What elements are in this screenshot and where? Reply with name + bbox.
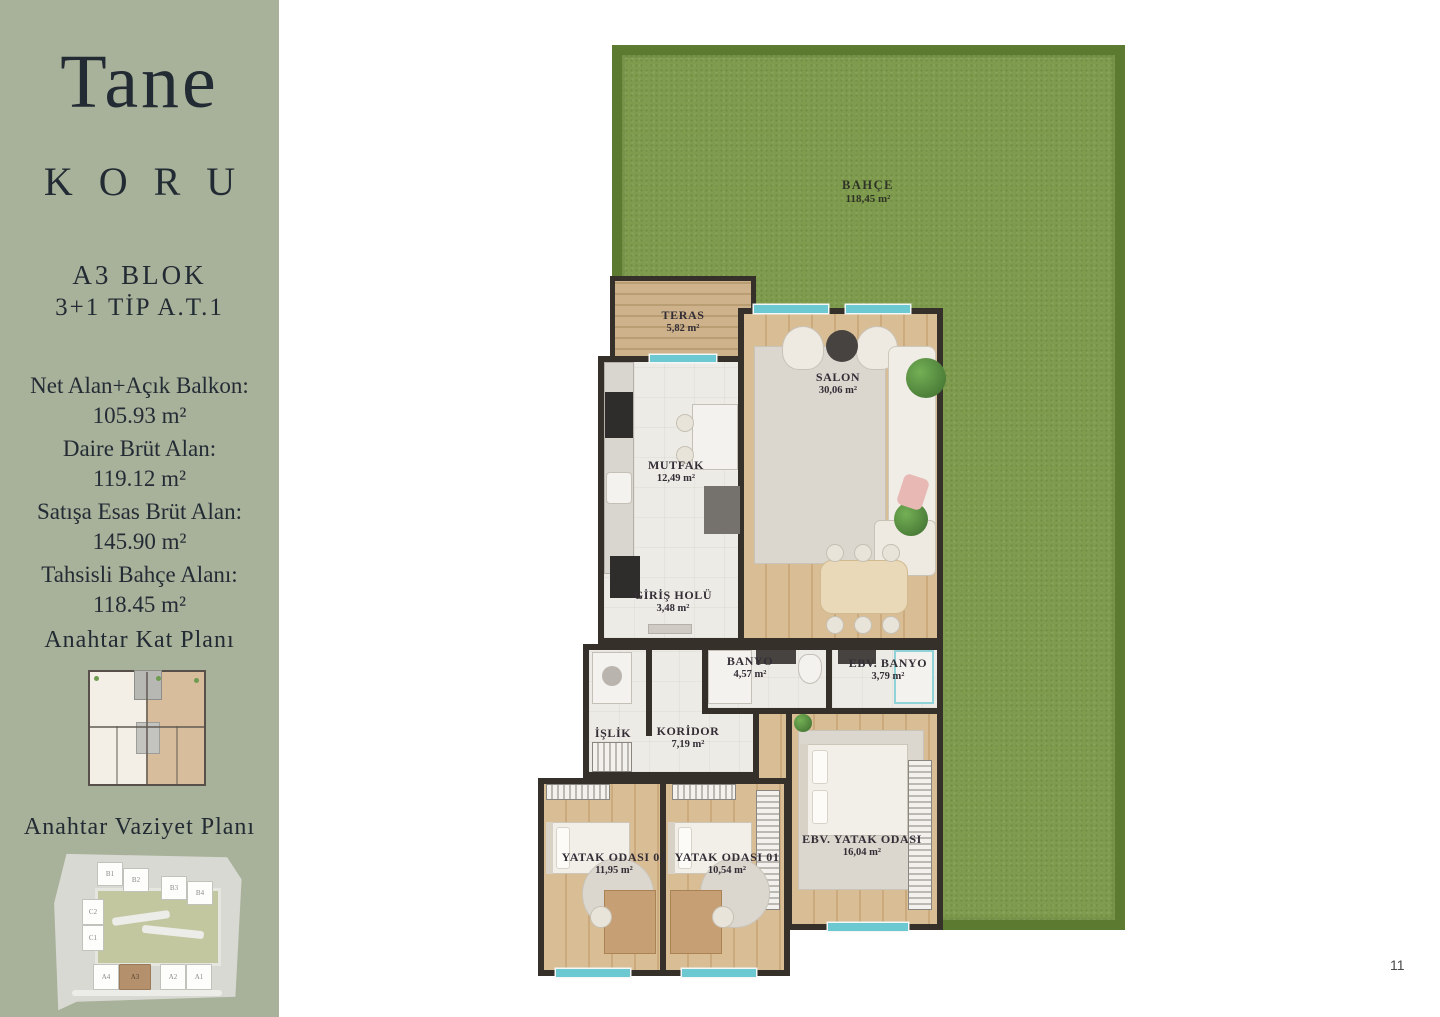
room-label-mutfak: MUTFAK 12,49 m² <box>648 458 704 484</box>
room-label-koridor: KORİDOR 7,19 m² <box>657 724 720 750</box>
dining-chair <box>826 616 844 634</box>
site-block: A1 <box>186 964 212 990</box>
window <box>682 969 756 977</box>
room-name: EBV. BANYO <box>849 656 927 671</box>
room-name: BANYO <box>727 654 773 669</box>
area-info-value: 145.90 m² <box>0 527 279 557</box>
site-block-label: A2 <box>169 973 178 981</box>
dining-chair <box>882 544 900 562</box>
site-block: B1 <box>97 862 123 886</box>
coffee-table <box>826 330 858 362</box>
area-info-value: 118.45 m² <box>0 590 279 620</box>
site-plan-thumbnail: B1 B2 B3 B4 C2 C1 A4 A3 A2 A1 <box>50 842 256 1012</box>
site-block-label: B2 <box>132 876 140 884</box>
area-info-item: Tahsisli Bahçe Alanı: 118.45 m² <box>0 560 279 620</box>
site-block-label: B1 <box>106 870 114 878</box>
room-name: EBV. YATAK ODASI <box>802 832 922 847</box>
room-area: 4,57 m² <box>727 669 773 680</box>
plant <box>906 358 946 398</box>
window <box>828 923 908 931</box>
room-name: SALON <box>816 370 860 385</box>
dining-chair <box>882 616 900 634</box>
keyplan-wall <box>176 726 178 784</box>
area-info-label: Satışa Esas Brüt Alan: <box>0 497 279 527</box>
key-floor-plan-title: Anahtar Kat Planı <box>0 627 279 654</box>
room-area: 11,95 m² <box>562 865 667 876</box>
site-block-highlighted: A3 <box>119 964 151 990</box>
unit-type-title: 3+1 TİP A.T.1 <box>0 294 279 322</box>
site-block-label: A1 <box>195 973 204 981</box>
area-info-item: Net Alan+Açık Balkon: 105.93 m² <box>0 371 279 431</box>
keyplan-wall <box>116 726 118 784</box>
site-block-label: B3 <box>170 884 178 892</box>
area-info-value: 105.93 m² <box>0 401 279 431</box>
room-name: İŞLİK <box>595 726 631 741</box>
room-name: YATAK ODASI 01 <box>675 850 780 865</box>
key-floor-plan-thumbnail <box>88 670 206 786</box>
doormat <box>648 624 692 634</box>
area-info-value: 119.12 m² <box>0 464 279 494</box>
area-info-label: Daire Brüt Alan: <box>0 434 279 464</box>
stove <box>605 392 633 438</box>
room-label-islik: İŞLİK <box>595 726 631 741</box>
site-block-label: B4 <box>196 889 204 897</box>
site-block-label: A3 <box>131 973 140 981</box>
desk-chair <box>590 906 612 928</box>
room-area: 7,19 m² <box>657 739 720 750</box>
keyplan-plant <box>194 678 199 683</box>
site-block-label: A4 <box>102 973 111 981</box>
room-area: 12,49 m² <box>648 473 704 484</box>
siteplan-ground <box>50 842 256 1012</box>
window <box>754 305 828 313</box>
site-block: B4 <box>187 881 213 905</box>
dining-chair <box>826 544 844 562</box>
armchair <box>782 326 824 370</box>
room-label-giris-holu: GİRİŞ HOLÜ 3,48 m² <box>634 588 712 614</box>
kitchen-chair <box>676 414 694 432</box>
area-info-label: Net Alan+Açık Balkon: <box>0 371 279 401</box>
utility-cabinet <box>592 742 632 772</box>
site-block: C1 <box>82 925 104 951</box>
area-info-list: Net Alan+Açık Balkon: 105.93 m² Daire Br… <box>0 371 279 623</box>
block-title: A3 BLOK <box>0 260 279 291</box>
kitchen-sink <box>606 472 632 504</box>
plant <box>794 714 812 732</box>
room-name: GİRİŞ HOLÜ <box>634 588 712 603</box>
site-block: A4 <box>93 964 119 990</box>
site-block-label: C2 <box>89 908 97 916</box>
wardrobe <box>672 784 736 800</box>
dining-chair <box>854 544 872 562</box>
headboard <box>800 744 808 836</box>
room-area: 3,79 m² <box>849 671 927 682</box>
desk-chair <box>712 906 734 928</box>
room-name: TERAS <box>661 308 704 323</box>
site-block-label: C1 <box>89 934 97 942</box>
room-area: 3,48 m² <box>634 603 712 614</box>
window <box>650 355 716 362</box>
room-label-ebv-banyo: EBV. BANYO 3,79 m² <box>849 656 927 682</box>
room-name: KORİDOR <box>657 724 720 739</box>
keyplan-wall <box>146 672 148 784</box>
headboard <box>546 822 553 874</box>
pillow <box>812 790 828 824</box>
room-label-yatak-02: YATAK ODASI 02 11,95 m² <box>562 850 667 876</box>
wall-partition <box>646 650 652 736</box>
room-area: 30,06 m² <box>816 385 860 396</box>
site-block: C2 <box>82 899 104 925</box>
room-area: 5,82 m² <box>661 323 704 334</box>
room-area: 10,54 m² <box>675 865 780 876</box>
room-label-salon: SALON 30,06 m² <box>816 370 860 396</box>
room-area: 118,45 m² <box>842 193 894 205</box>
desk <box>604 890 656 954</box>
keyplan-plant <box>156 676 161 681</box>
siteplan-path <box>72 990 222 996</box>
room-label-ebv-yatak: EBV. YATAK ODASI 16,04 m² <box>802 832 922 858</box>
room-label-bahce: BAHÇE 118,45 m² <box>842 178 894 205</box>
window <box>556 969 630 977</box>
washer-drum <box>602 666 622 686</box>
dining-chair <box>854 616 872 634</box>
room-label-teras: TERAS 5,82 m² <box>661 308 704 334</box>
area-info-label: Tahsisli Bahçe Alanı: <box>0 560 279 590</box>
keyplan-core <box>134 670 162 700</box>
room-name: BAHÇE <box>842 178 894 193</box>
brand-logo: Tane <box>0 44 279 120</box>
dining-table <box>820 560 908 614</box>
key-site-plan-title: Anahtar Vaziyet Planı <box>0 814 279 841</box>
toilet <box>798 654 822 684</box>
area-info-item: Daire Brüt Alan: 119.12 m² <box>0 434 279 494</box>
keyplan-plant <box>94 676 99 681</box>
area-info-item: Satışa Esas Brüt Alan: 145.90 m² <box>0 497 279 557</box>
site-block: A2 <box>160 964 186 990</box>
room-area: 16,04 m² <box>802 847 922 858</box>
room-name: MUTFAK <box>648 458 704 473</box>
room-label-yatak-01: YATAK ODASI 01 10,54 m² <box>675 850 780 876</box>
kitchen-island <box>704 486 740 534</box>
room-name: YATAK ODASI 02 <box>562 850 667 865</box>
site-block: B3 <box>161 876 187 900</box>
window <box>846 305 910 313</box>
site-block: B2 <box>123 868 149 892</box>
page-number: 11 <box>1390 957 1405 973</box>
pillow <box>812 750 828 784</box>
wardrobe <box>546 784 610 800</box>
brand-logo-koru: KORU <box>13 158 292 205</box>
room-label-banyo: BANYO 4,57 m² <box>727 654 773 680</box>
sidebar-panel: Tane KORU A3 BLOK 3+1 TİP A.T.1 Net Alan… <box>0 0 279 1017</box>
